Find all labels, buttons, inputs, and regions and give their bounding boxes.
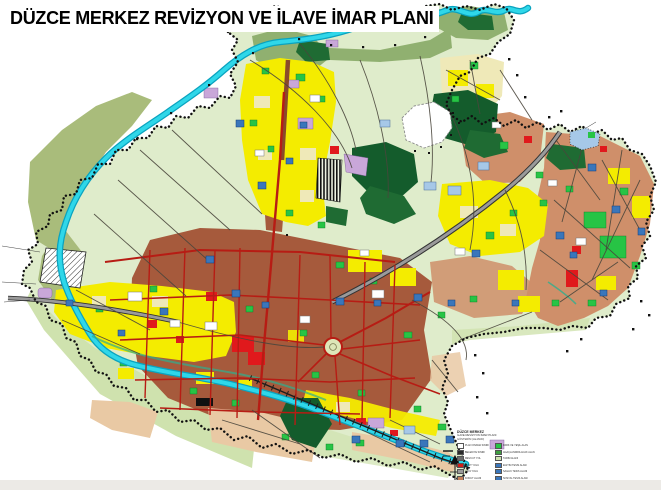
legend-item: AĞAÇLANDIRILACAK ALAN bbox=[495, 450, 535, 455]
legend-item: TARIM ALANI bbox=[495, 456, 535, 461]
legend-color-chip bbox=[495, 450, 502, 455]
legend-item-label: AĞAÇLANDIRILACAK ALAN bbox=[503, 451, 535, 454]
legend-color-chip bbox=[495, 469, 502, 474]
legend-item-label: PARK VE YEŞİL ALAN bbox=[503, 444, 528, 447]
map-title: DÜZCE MERKEZ REVİZYON VE İLAVE İMAR PLAN… bbox=[6, 6, 439, 32]
legend-color-chip bbox=[457, 443, 464, 448]
legend-color-chip bbox=[495, 456, 502, 461]
legend-item-label: BELEDİYE SINIRI bbox=[465, 451, 485, 454]
legend-color-chip bbox=[457, 469, 464, 474]
legend-item: TAŞIT YOLU bbox=[457, 463, 489, 468]
military-hatched-area bbox=[316, 158, 342, 202]
window-bottom-strip bbox=[0, 480, 661, 490]
legend-caption: GÖSTERİM (LEJAND) bbox=[457, 438, 567, 441]
detached-parcel bbox=[570, 122, 600, 150]
legend-color-chip bbox=[457, 450, 464, 455]
legend-item: SAĞLIK TESİS ALANI bbox=[495, 469, 535, 474]
legend-item-label: PLAN ONAMA SINIRI bbox=[465, 444, 489, 447]
legend-item-label: SAĞLIK TESİS ALANI bbox=[503, 470, 527, 473]
legend-item-label: EĞİTİM TESİS ALANI bbox=[503, 464, 527, 467]
legend-color-chip bbox=[457, 456, 464, 461]
legend-color-chip bbox=[495, 463, 502, 468]
roundabout bbox=[324, 338, 342, 356]
legend-color-chip bbox=[495, 443, 502, 448]
zoning-map-canvas bbox=[0, 0, 661, 490]
legend-item: MEVCUT YOL bbox=[457, 456, 489, 461]
legend-item-label: TARIM ALANI bbox=[503, 457, 518, 460]
legend-item-label: TAŞIT YOLU bbox=[465, 464, 479, 467]
legend-item: YAYA YOLU bbox=[457, 469, 489, 474]
legend-item-label: YAYA YOLU bbox=[465, 470, 478, 473]
legend-item: EĞİTİM TESİS ALANI bbox=[495, 463, 535, 468]
legend-item: PLAN ONAMA SINIRI bbox=[457, 443, 489, 448]
legend-item-label: MEVCUT YOL bbox=[465, 457, 481, 460]
legend-color-chip bbox=[457, 463, 464, 468]
legend-item: PARK VE YEŞİL ALAN bbox=[495, 443, 535, 448]
map-screenshot: DÜZCE MERKEZ REVİZYON VE İLAVE İMAR PLAN… bbox=[0, 0, 661, 490]
legend-item: BELEDİYE SINIRI bbox=[457, 450, 489, 455]
